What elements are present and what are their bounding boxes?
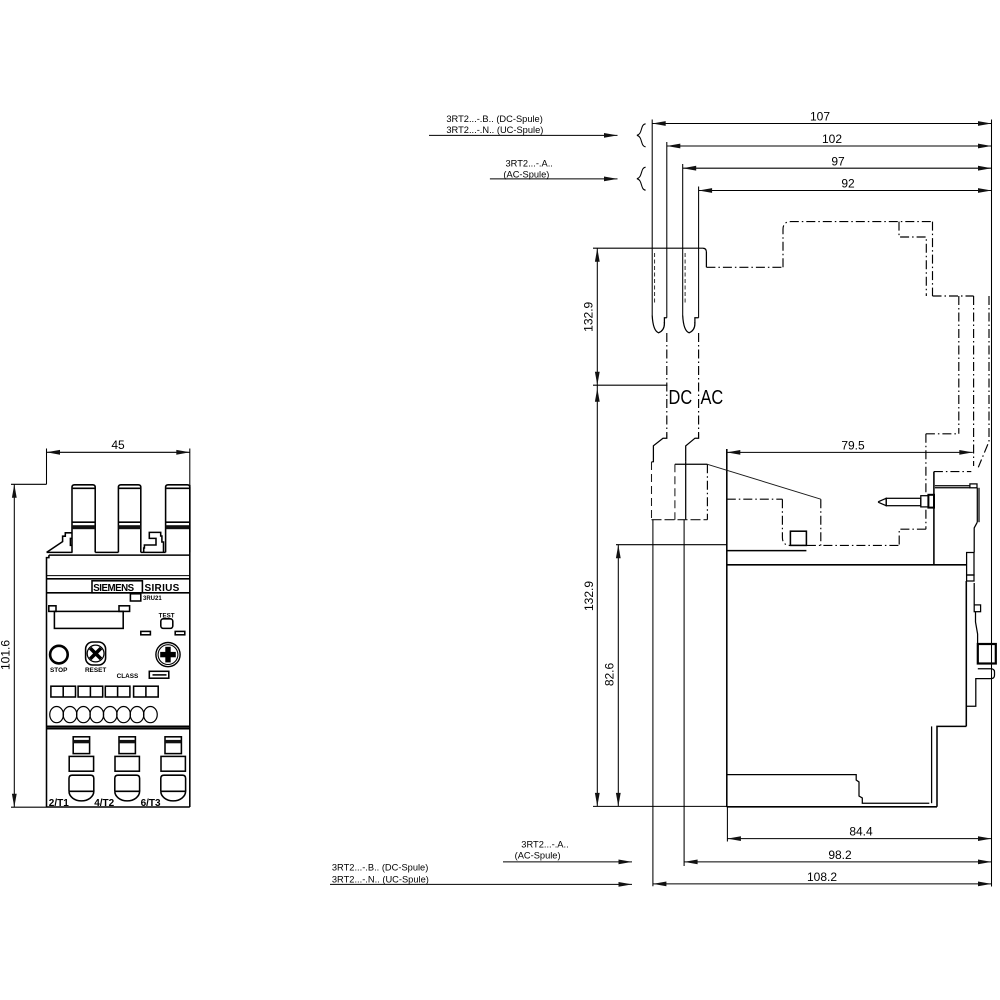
svg-text:84.4: 84.4: [849, 825, 873, 839]
svg-text:92: 92: [841, 177, 855, 191]
svg-text:3RT2...-.N.. (UC-Spule): 3RT2...-.N.. (UC-Spule): [332, 874, 429, 884]
svg-text:82.6: 82.6: [603, 662, 617, 686]
svg-text:98.2: 98.2: [828, 848, 852, 862]
svg-text:2/T1: 2/T1: [49, 798, 69, 809]
svg-text:(AC-Spule): (AC-Spule): [515, 851, 561, 861]
svg-text:3RT2...-.B.. (DC-Spule): 3RT2...-.B.. (DC-Spule): [332, 862, 428, 872]
svg-text:4/T2: 4/T2: [94, 798, 114, 809]
svg-text:6/T3: 6/T3: [141, 798, 161, 809]
svg-text:DC: DC: [669, 385, 693, 408]
svg-text:3RT2...-.N.. (UC-Spule): 3RT2...-.N.. (UC-Spule): [446, 125, 543, 135]
svg-text:RESET: RESET: [85, 667, 106, 674]
svg-text:97: 97: [831, 154, 845, 168]
svg-text:107: 107: [810, 110, 830, 124]
svg-text:SIRIUS: SIRIUS: [145, 583, 180, 594]
svg-text:AC: AC: [701, 385, 724, 408]
svg-text:3RT2...-.A..: 3RT2...-.A..: [506, 158, 553, 168]
svg-text:132.9: 132.9: [582, 301, 596, 331]
svg-text:3RU21: 3RU21: [143, 596, 162, 602]
svg-text:101.6: 101.6: [0, 640, 13, 670]
svg-text:79.5: 79.5: [841, 438, 865, 452]
svg-text:(AC-Spule): (AC-Spule): [503, 169, 549, 179]
svg-text:STOP: STOP: [50, 667, 68, 674]
svg-text:45: 45: [111, 438, 125, 452]
svg-text:132.9: 132.9: [582, 581, 596, 611]
svg-text:102: 102: [822, 132, 842, 146]
svg-text:CLASS: CLASS: [117, 673, 139, 680]
svg-text:3RT2...-.B.. (DC-Spule): 3RT2...-.B.. (DC-Spule): [446, 114, 542, 124]
svg-text:108.2: 108.2: [807, 870, 837, 884]
svg-text:3RT2...-.A..: 3RT2...-.A..: [521, 839, 568, 849]
svg-text:SIEMENS: SIEMENS: [93, 583, 134, 594]
